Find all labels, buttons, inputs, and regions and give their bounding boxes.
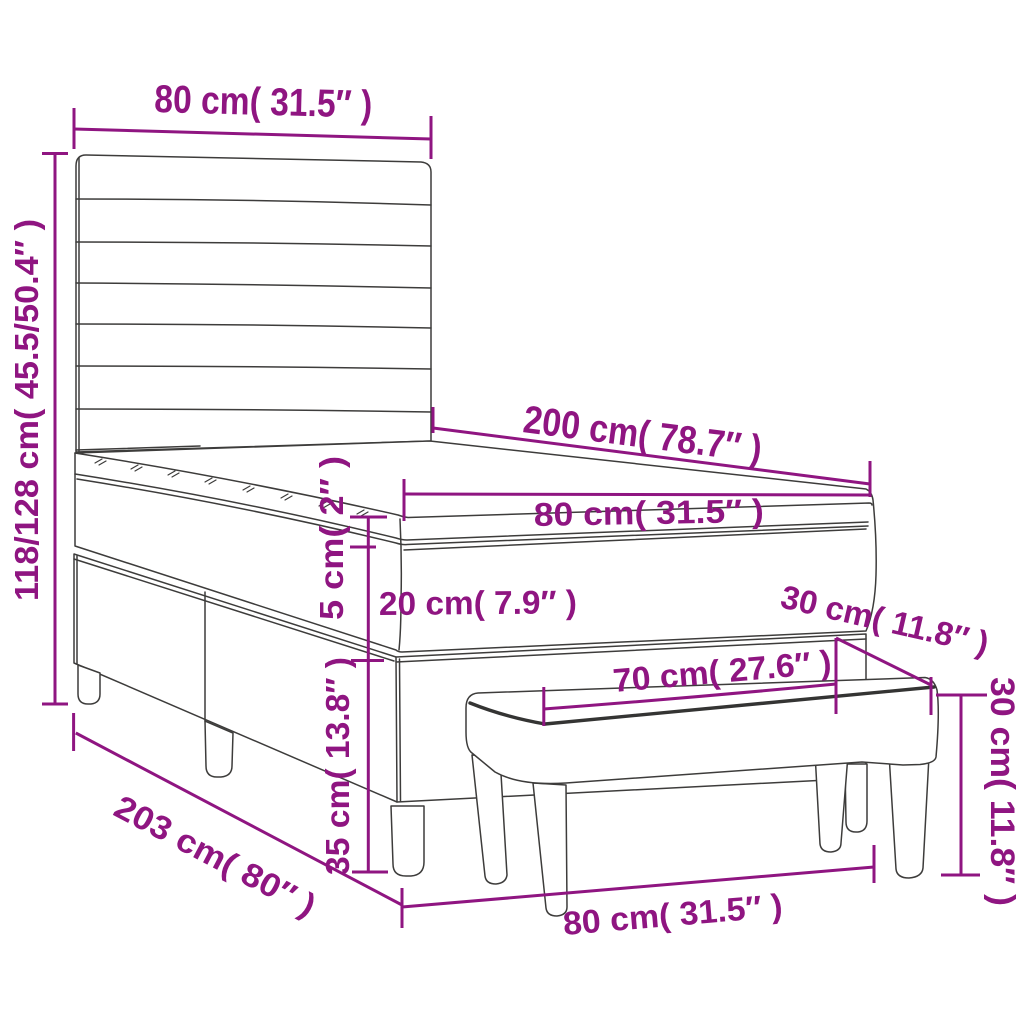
svg-text:118/128 cm( 45.5/50.4″ ): 118/128 cm( 45.5/50.4″ )	[8, 219, 45, 601]
svg-text:30 cm( 11.8″ ): 30 cm( 11.8″ )	[983, 677, 1021, 906]
svg-text:35 cm( 13.8″ ): 35 cm( 13.8″ )	[319, 657, 356, 875]
svg-text:5 cm( 2″ ): 5 cm( 2″ )	[313, 456, 350, 620]
svg-text:20 cm( 7.9″ ): 20 cm( 7.9″ )	[379, 583, 577, 622]
svg-text:80 cm( 31.5″ ): 80 cm( 31.5″ )	[533, 492, 764, 533]
svg-text:80 cm( 31.5″ ): 80 cm( 31.5″ )	[154, 78, 373, 127]
